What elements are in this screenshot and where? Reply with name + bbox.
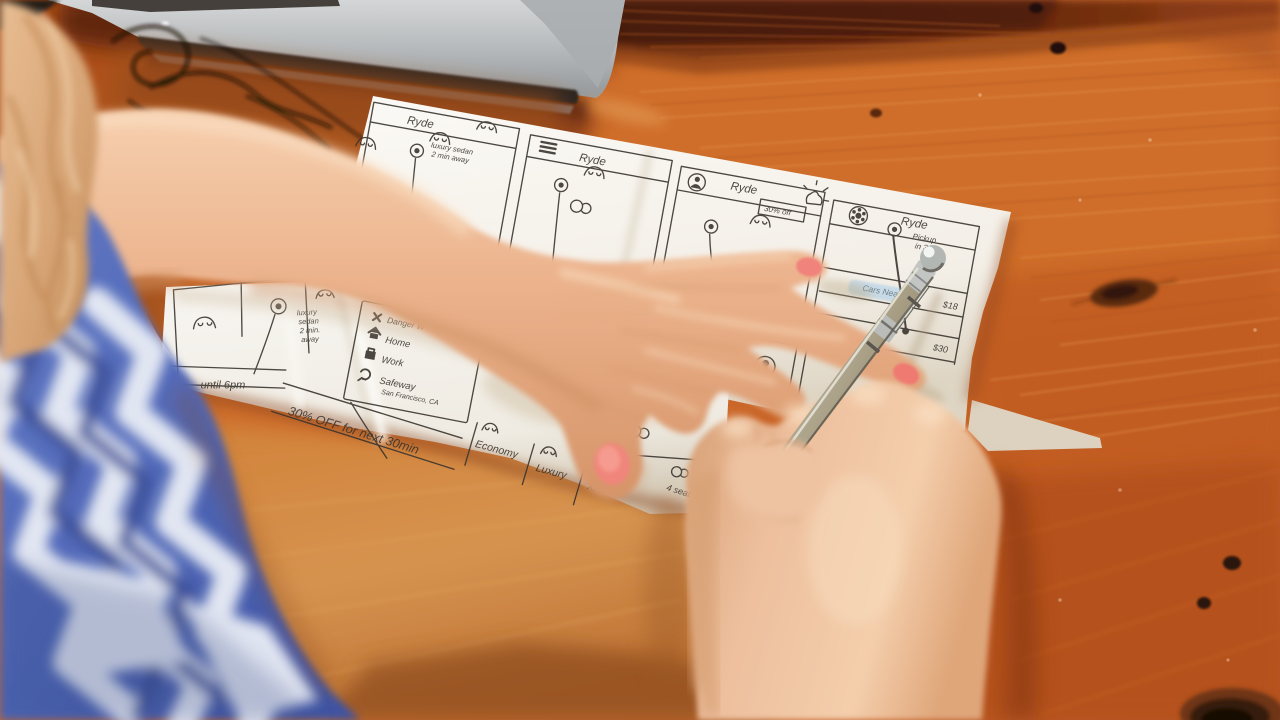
svg-text:until 6pm: until 6pm bbox=[201, 380, 246, 392]
svg-text:away: away bbox=[301, 334, 320, 344]
